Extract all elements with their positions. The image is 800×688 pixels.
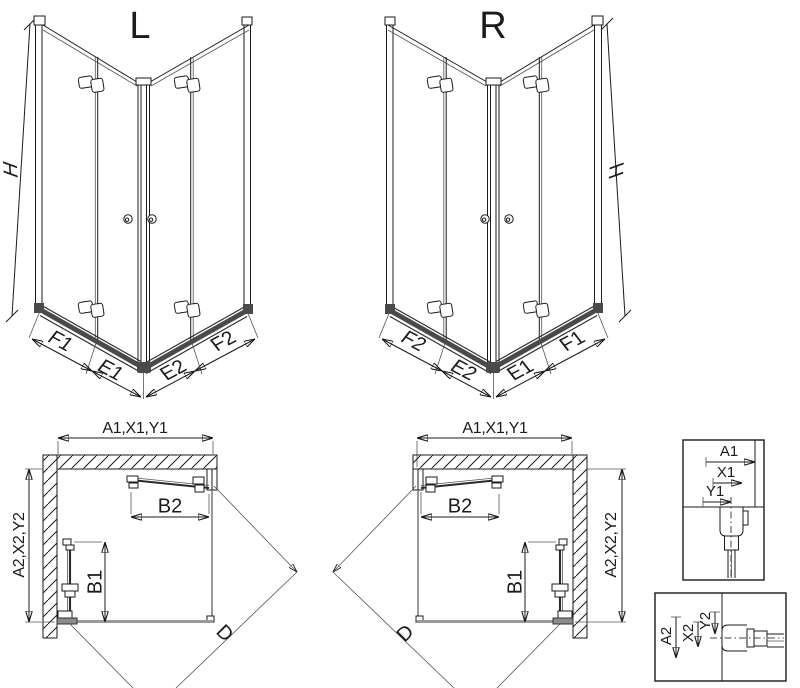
diagonal-dim-line: [333, 486, 416, 572]
hinge-icon: [523, 299, 549, 320]
view-title-left: L: [129, 5, 150, 47]
view-title-right: R: [479, 5, 506, 47]
hinge-icon: [78, 74, 104, 95]
diagonal-dim-line: [214, 486, 297, 572]
detail-box: [683, 440, 764, 580]
perspective-view-left: L H: [0, 5, 258, 399]
rail-corner-junction: [137, 362, 151, 373]
wall-profile-cap: [242, 17, 252, 25]
door-pivot-bracket: [553, 618, 573, 624]
hinge-icon: [427, 74, 453, 95]
entry-side-dim-label: B1: [504, 570, 526, 594]
height-dim-label: H: [605, 159, 629, 182]
wall-profile-cap: [592, 16, 603, 25]
diagonal-dim-label: D: [212, 621, 238, 647]
dim-label-e1: E1: [93, 356, 128, 385]
door-knob-icon: [481, 215, 489, 223]
width-dim-label: A1,X1,Y1: [102, 420, 168, 437]
width-dim-label: A1,X1,Y1: [462, 420, 528, 437]
door-knob-icon: [148, 215, 156, 223]
corner-post-cap: [486, 78, 501, 85]
diagonal-dim-label: D: [393, 621, 419, 647]
door-knob-icon: [124, 215, 132, 223]
diagram-svg: L H: [0, 0, 800, 688]
dim-label-y1: Y1: [706, 483, 724, 500]
depth-dim-label: A2,X2,Y2: [603, 512, 620, 578]
plan-view-left: A1,X1,Y1 A2,X2,Y2 B2: [11, 420, 297, 688]
depth-dim-label: A2,X2,Y2: [11, 512, 28, 578]
detail-view-width-profile: A1 X1 Y1: [683, 440, 764, 580]
height-dim-label: H: [0, 158, 23, 181]
wall-profile-cap: [385, 17, 395, 25]
hinge-icon: [427, 299, 453, 320]
dim-label-a2: A2: [658, 627, 675, 645]
entry-top-dim-label: B2: [448, 495, 472, 517]
wall-top: [57, 455, 217, 469]
dim-label-y2: Y2: [697, 612, 714, 630]
entry-top-dim-label: B2: [158, 495, 182, 517]
detail-view-depth-profile: A2 X2 Y2: [655, 593, 786, 681]
wall-top: [413, 455, 573, 469]
hinge-icon: [78, 299, 104, 320]
rail-corner-junction: [486, 362, 500, 373]
shower-enclosure-diagram: L H: [0, 0, 800, 688]
corner-post-cap: [136, 78, 151, 85]
wall-right: [573, 455, 587, 638]
wall-profile-cap: [34, 16, 45, 25]
perspective-view-right: R H: [379, 5, 631, 399]
dim-label-a1: A1: [720, 443, 738, 460]
plan-view-right: A1,X1,Y1 A2,X2,Y2 B2: [333, 420, 626, 688]
hinge-icon: [523, 74, 549, 95]
wall-left: [43, 455, 57, 638]
hinge-icon: [174, 74, 200, 95]
door-pivot-bracket: [57, 618, 77, 624]
hinge-icon: [174, 299, 200, 320]
door-knob-icon: [505, 215, 513, 223]
dim-label-f1: F1: [43, 327, 77, 355]
dim-label-x1: X1: [717, 464, 735, 481]
dim-label-x2: X2: [680, 624, 697, 642]
entry-side-dim-label: B1: [84, 570, 106, 594]
